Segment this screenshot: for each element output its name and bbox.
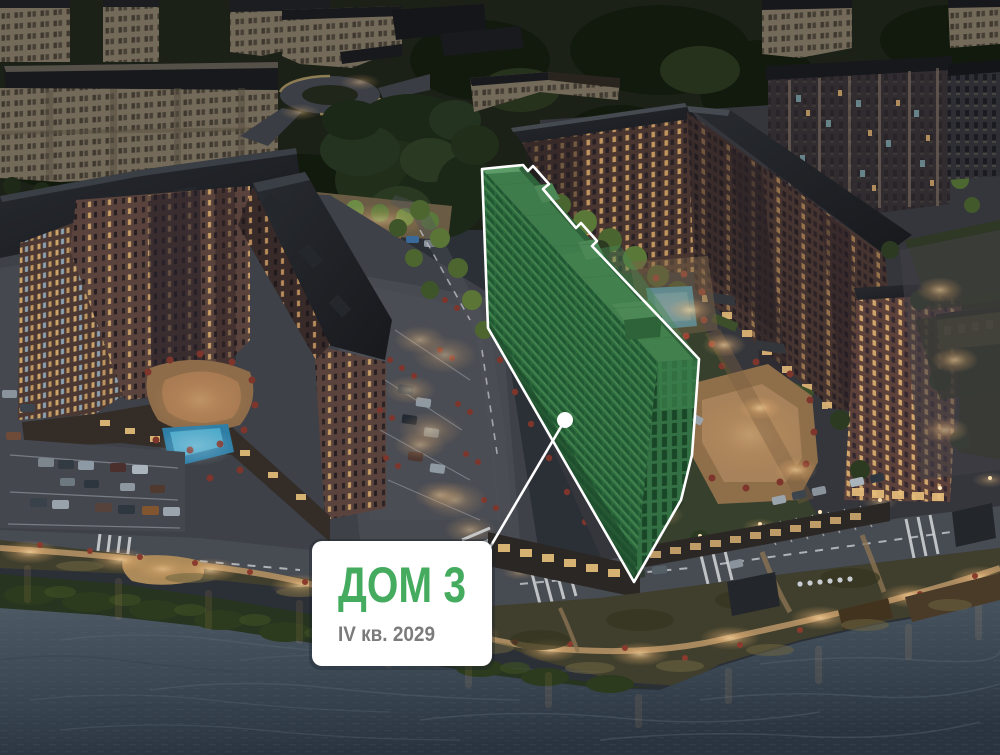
svg-text:IV кв. 2029: IV кв. 2029 [338, 622, 435, 646]
svg-text:ДОМ 3: ДОМ 3 [338, 557, 466, 613]
